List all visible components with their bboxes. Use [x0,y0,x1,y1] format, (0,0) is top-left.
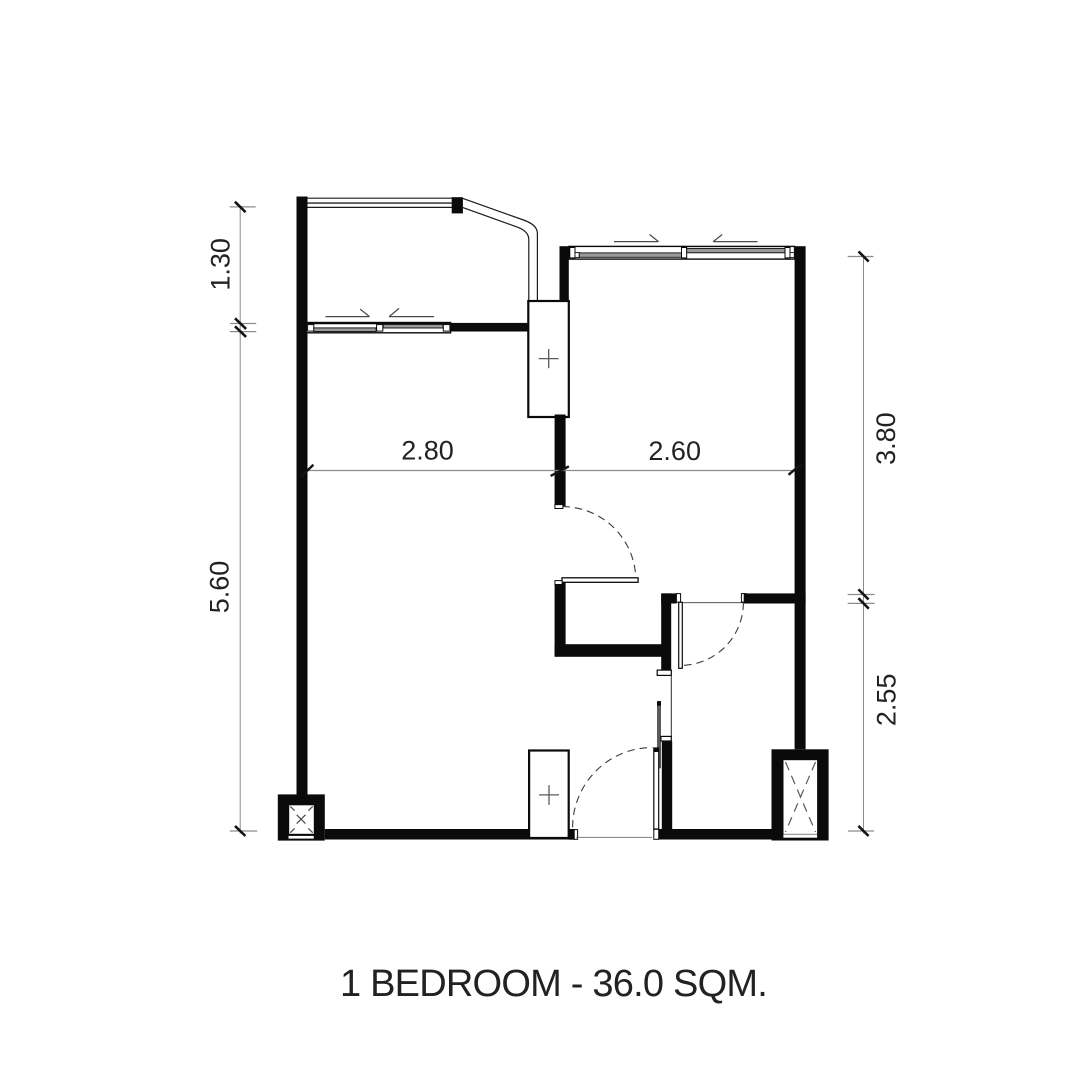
svg-text:1 BEDROOM - 36.0 SQM.: 1 BEDROOM - 36.0 SQM. [340,963,767,1005]
svg-text:2.80: 2.80 [401,436,454,466]
svg-text:3.80: 3.80 [871,412,901,465]
svg-text:5.60: 5.60 [205,561,235,614]
svg-text:1.30: 1.30 [206,238,236,291]
svg-text:2.60: 2.60 [648,436,701,466]
svg-text:2.55: 2.55 [872,674,902,727]
